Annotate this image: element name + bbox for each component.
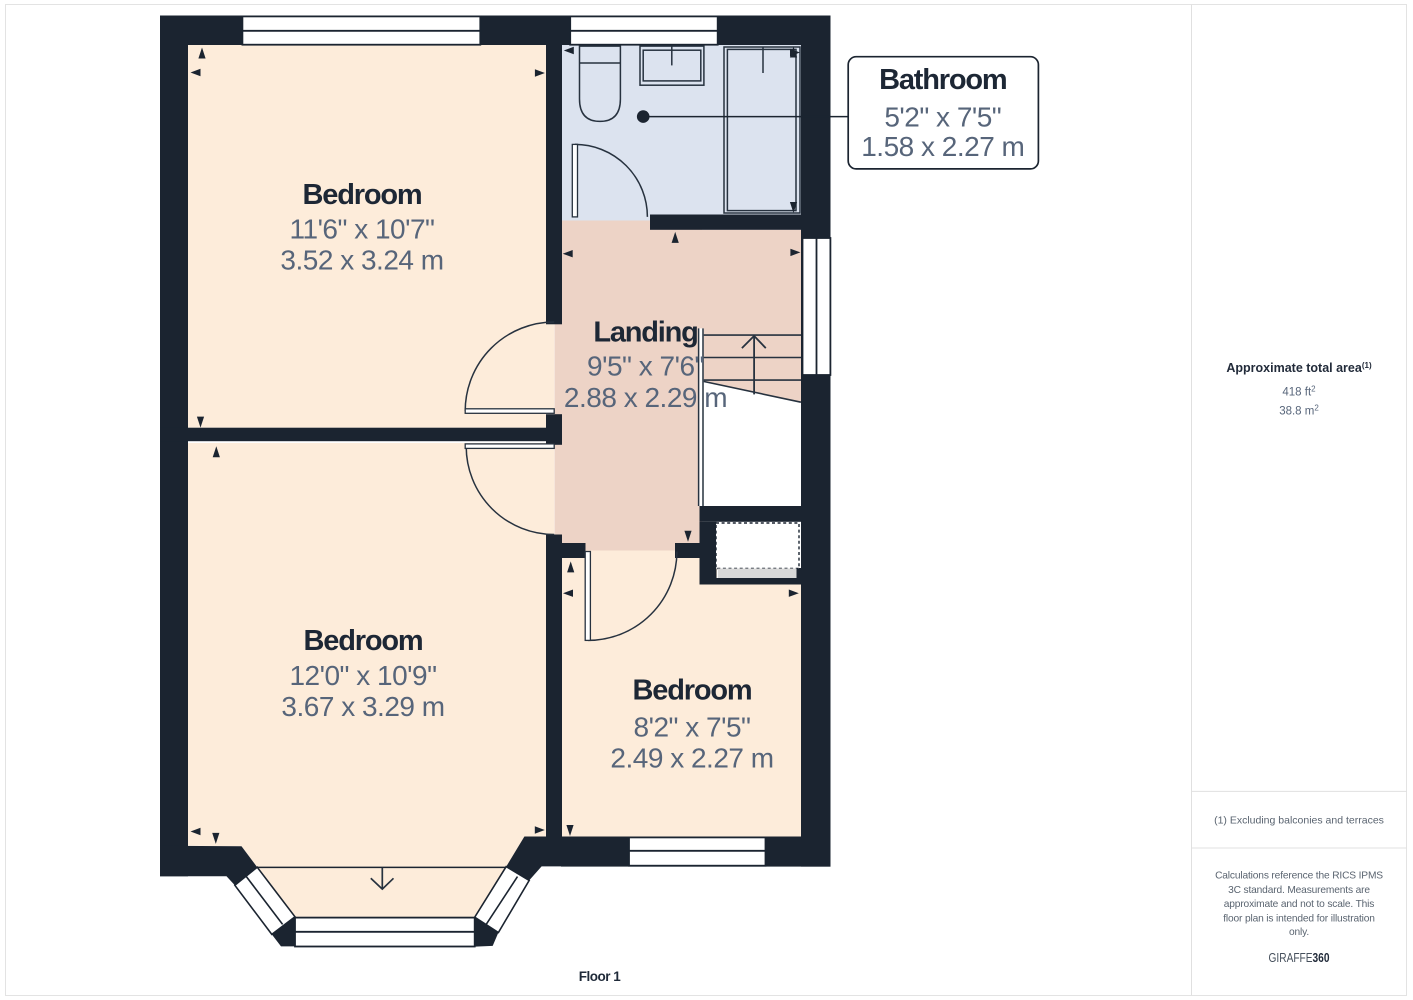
svg-text:approximate and not to scale.: approximate and not to scale. This [1224,899,1374,910]
svg-text:418 ft2: 418 ft2 [1282,385,1316,399]
svg-text:floor plan is intended for ill: floor plan is intended for illustration [1223,913,1375,924]
svg-text:3C standard. Measurements are: 3C standard. Measurements are [1228,885,1370,896]
svg-text:Bedroom: Bedroom [304,625,423,657]
svg-text:only.: only. [1289,927,1309,938]
svg-text:3.52 x 3.24 m: 3.52 x 3.24 m [280,245,443,276]
svg-text:2.88 x 2.29 m: 2.88 x 2.29 m [564,382,727,413]
svg-text:1.58 x 2.27 m: 1.58 x 2.27 m [861,131,1024,162]
svg-text:11'6" x 10'7": 11'6" x 10'7" [290,213,435,244]
svg-text:Calculations reference the RIC: Calculations reference the RICS IPMS [1215,871,1383,882]
svg-text:GIRAFFE360: GIRAFFE360 [1269,951,1330,965]
svg-text:Landing: Landing [593,317,697,349]
svg-text:3.67 x 3.29 m: 3.67 x 3.29 m [281,691,444,722]
svg-text:Floor 1: Floor 1 [579,969,621,984]
svg-text:Approximate total area(1): Approximate total area(1) [1226,361,1372,375]
svg-text:Bedroom: Bedroom [303,179,422,211]
svg-text:2.49 x 2.27 m: 2.49 x 2.27 m [610,743,773,774]
svg-text:Bathroom: Bathroom [879,64,1006,96]
svg-text:Bedroom: Bedroom [633,675,752,707]
svg-text:(1) Excluding balconies and te: (1) Excluding balconies and terraces [1214,815,1384,827]
svg-text:9'5" x 7'6": 9'5" x 7'6" [587,351,704,382]
svg-text:38.8 m2: 38.8 m2 [1279,404,1319,418]
svg-text:12'0" x 10'9": 12'0" x 10'9" [289,660,436,691]
svg-text:5'2" x 7'5": 5'2" x 7'5" [884,102,1001,133]
svg-text:8'2" x 7'5": 8'2" x 7'5" [634,712,751,743]
